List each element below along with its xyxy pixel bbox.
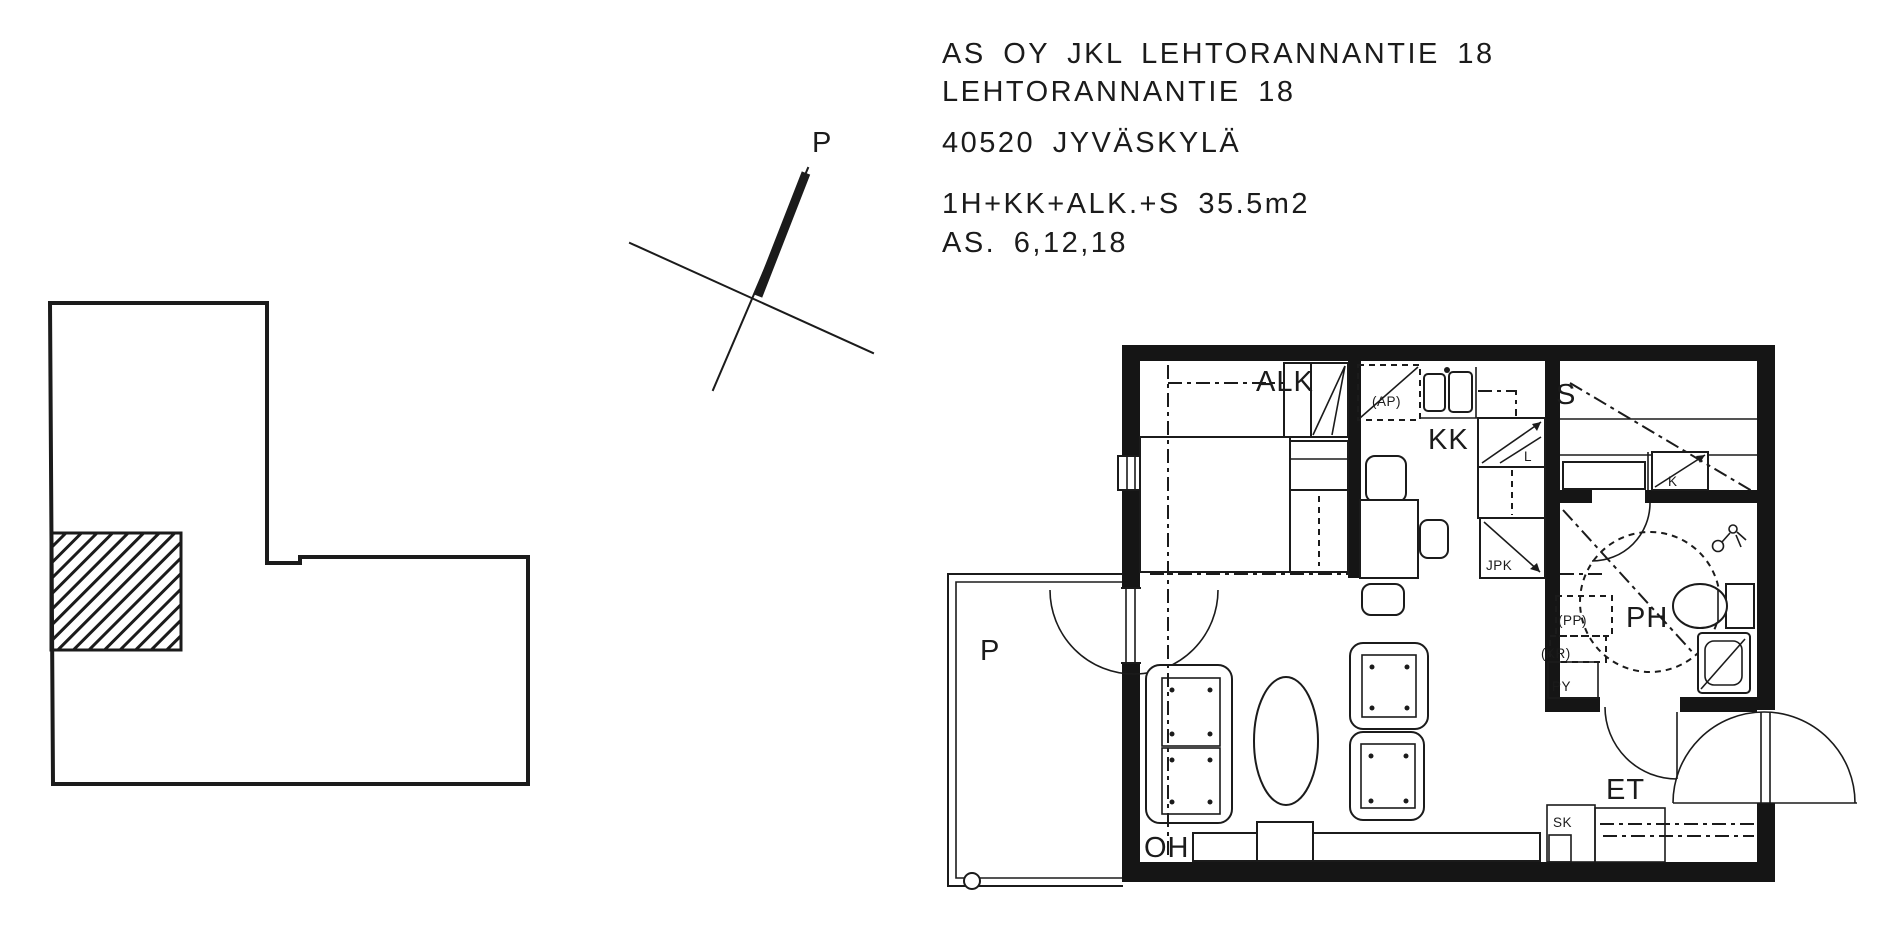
balcony bbox=[948, 574, 1122, 889]
chair bbox=[1362, 584, 1404, 615]
bathroom-door-swing bbox=[1605, 707, 1677, 779]
room-label-bathroom: PH bbox=[1626, 602, 1668, 634]
room-label-living-room: OH bbox=[1144, 832, 1190, 864]
dining-set bbox=[1360, 456, 1448, 615]
apartment-plan: ALK KK S PH ET OH P (AP) L JPK K (PP) (K… bbox=[948, 345, 1857, 889]
sofa bbox=[1146, 665, 1232, 823]
north-needle bbox=[758, 173, 806, 296]
sideboard bbox=[1193, 833, 1540, 861]
label-dishwasher: (AP) bbox=[1372, 394, 1401, 409]
balcony-door bbox=[1050, 588, 1218, 674]
toilet-cistern bbox=[1726, 584, 1754, 628]
room-label-entry: ET bbox=[1606, 774, 1645, 806]
label-stove: L bbox=[1524, 449, 1532, 464]
toilet-bowl bbox=[1673, 584, 1727, 628]
upper-cabinet-line bbox=[1478, 391, 1516, 416]
label-fridge-freezer: JPK bbox=[1486, 558, 1512, 573]
site-plan bbox=[50, 303, 528, 784]
dining-table bbox=[1360, 500, 1418, 578]
north-arrow: P bbox=[630, 127, 873, 390]
label-sauna-heater: K bbox=[1668, 474, 1678, 489]
sauna bbox=[1560, 383, 1757, 561]
shelf-unit bbox=[1290, 441, 1348, 490]
shower-icon bbox=[1713, 541, 1724, 552]
living-room-furniture bbox=[1146, 643, 1540, 861]
label-washer: (PP) bbox=[1558, 613, 1587, 628]
tv-stand bbox=[1257, 822, 1313, 861]
bed bbox=[1140, 437, 1290, 572]
floor-plan-document: AS OY JKL LEHTORANNANTIE 18 LEHTORANNANT… bbox=[0, 0, 1902, 934]
plan-drawing: P bbox=[0, 0, 1902, 934]
room-label-kitchenette: KK bbox=[1428, 424, 1469, 456]
sink-bowl bbox=[1424, 374, 1445, 411]
chair bbox=[1420, 520, 1448, 558]
chair bbox=[1366, 456, 1406, 502]
location-hatch-marker bbox=[51, 533, 181, 650]
faucet bbox=[1444, 367, 1450, 373]
bathroom bbox=[1548, 510, 1754, 779]
sink-bowl bbox=[1449, 372, 1472, 412]
label-dryer: (KR) bbox=[1541, 646, 1571, 661]
label-cleaning-closet: SK bbox=[1553, 815, 1572, 830]
door-swing-arc bbox=[1050, 590, 1218, 674]
sauna-bench bbox=[1563, 462, 1645, 489]
entry-hall bbox=[1547, 712, 1857, 862]
front-door-swing bbox=[1673, 712, 1855, 803]
alcove-furniture bbox=[1140, 363, 1348, 572]
coffee-table bbox=[1254, 677, 1318, 805]
room-label-alcove: ALK bbox=[1256, 366, 1314, 398]
room-label-balcony: P bbox=[980, 635, 1000, 667]
label-laundry-cabinet: PY bbox=[1552, 679, 1571, 694]
railing-post bbox=[964, 873, 980, 889]
room-label-sauna: S bbox=[1556, 379, 1576, 411]
north-label: P bbox=[812, 127, 832, 159]
